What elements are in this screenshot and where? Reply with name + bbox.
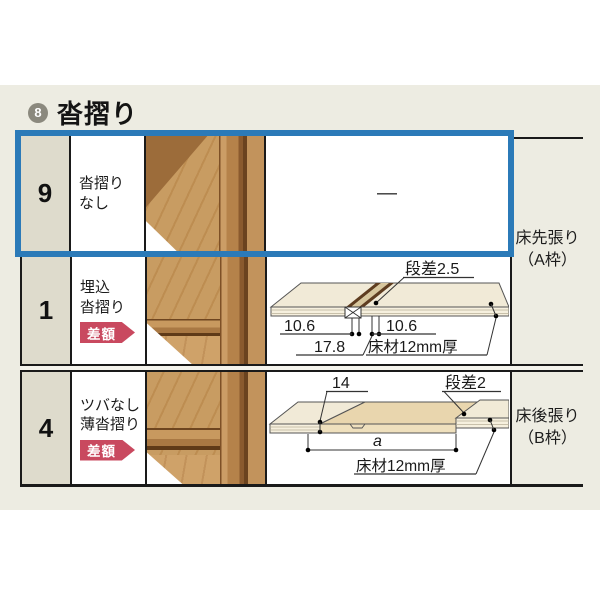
option-row-4-thin-sill[interactable]: 4 ツバなし 薄沓摺り 差額 14 — [20, 372, 510, 484]
table-bottom-line — [20, 484, 583, 487]
dim-total-label: 17.8 — [314, 339, 345, 356]
option-diagram-cell: 段差2.5 10.6 10.6 17.8 床材12mm厚 — [267, 257, 510, 364]
option-name: ツバなし 薄沓摺り 差額 — [72, 372, 147, 484]
option-name: 沓摺り なし — [71, 136, 146, 251]
material-label: 床材12mm厚 — [356, 457, 446, 475]
embedded-sill-section-diagram: 段差2.5 10.6 10.6 17.8 床材12mm厚 — [268, 258, 509, 363]
dim-right-label: 10.6 — [386, 318, 417, 335]
frame-label-line: （B枠） — [512, 428, 583, 450]
photo-thin-sill — [147, 372, 265, 484]
frame-label-a: 床先張り （A枠） — [512, 228, 583, 271]
frame-label-line: （A枠） — [512, 250, 583, 272]
section-title: 沓摺り — [57, 94, 138, 131]
frame-label-b: 床後張り （B枠） — [512, 406, 583, 449]
option-name-line: ツバなし — [80, 396, 145, 416]
option-photo-cell — [147, 372, 267, 484]
option-name-line: なし — [79, 194, 144, 214]
option-name-line: 埋込 — [80, 278, 145, 298]
no-diagram-dash: — — [377, 182, 397, 205]
option-name-line: 沓摺り — [80, 298, 145, 318]
dim-overlap-label: 14 — [332, 375, 350, 392]
option-number: 4 — [22, 372, 72, 484]
option-diagram-cell: 14 段差2 a 床材12mm厚 — [267, 372, 510, 484]
dim-step-label: 段差2.5 — [405, 260, 459, 278]
option-name: 埋込 沓摺り 差額 — [72, 257, 147, 364]
dim-left-label: 10.6 — [284, 318, 315, 335]
option-number: 1 — [22, 257, 72, 364]
option-row-1-embedded-sill[interactable]: 1 埋込 沓摺り 差額 — [20, 257, 510, 364]
price-difference-badge: 差額 — [80, 440, 135, 461]
frame-label-line: 床先張り — [512, 228, 583, 250]
frame-label-line: 床後張り — [512, 406, 583, 428]
option-name-line: 薄沓摺り — [80, 415, 145, 435]
photo-no-sill — [146, 136, 264, 251]
option-diagram-cell: — — [266, 136, 508, 251]
dim-span-label: a — [373, 433, 382, 450]
section-header: 8 沓摺り — [28, 94, 138, 131]
option-photo-cell — [146, 136, 266, 251]
section-number-icon: 8 — [28, 103, 48, 123]
photo-embedded-sill — [147, 257, 265, 364]
option-name-line: 沓摺り — [79, 174, 144, 194]
right-column-topline — [510, 137, 583, 139]
option-row-9-no-sill[interactable]: 9 沓摺り なし — — [15, 130, 514, 257]
frame-section-separator — [20, 364, 583, 372]
thin-sill-section-diagram: 14 段差2 a 床材12mm厚 — [268, 372, 509, 484]
price-difference-badge: 差額 — [80, 322, 135, 343]
material-label: 床材12mm厚 — [368, 338, 458, 356]
option-photo-cell — [147, 257, 267, 364]
option-number: 9 — [21, 136, 71, 251]
dim-step-label: 段差2 — [445, 374, 486, 392]
